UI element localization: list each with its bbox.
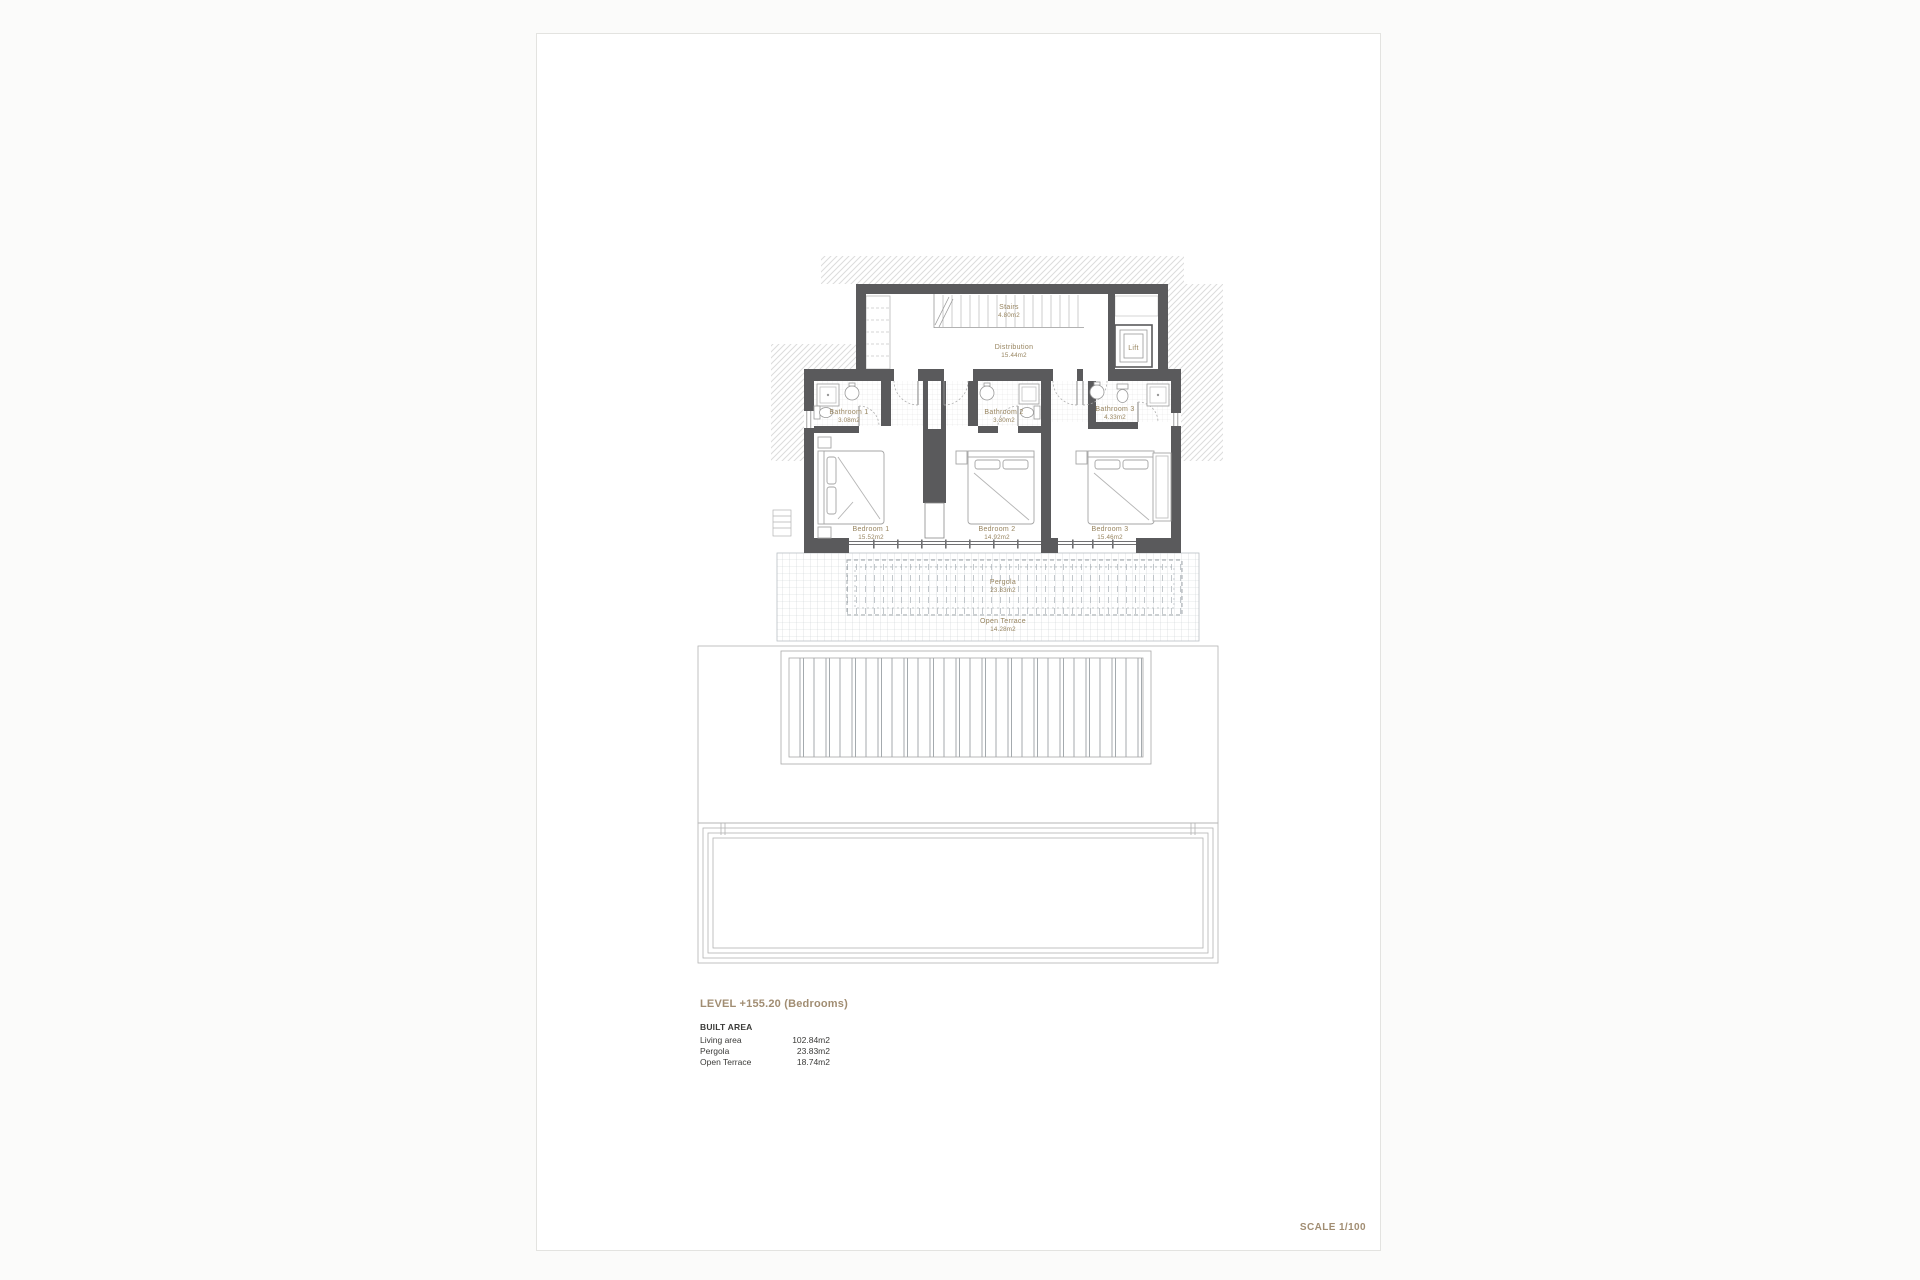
area-value: 23.83m2 — [797, 1046, 830, 1057]
bedroom2-label: Bedroom 2 — [979, 526, 1016, 533]
floor-plan-svg: Stairs 4.80m2 Distribution 15.44m2 Lift … — [537, 34, 1382, 1252]
level-title: LEVEL +155.20 (Bedrooms) — [700, 998, 840, 1010]
duct-outline — [925, 503, 944, 538]
area-label: Pergola — [700, 1046, 797, 1057]
bedroom1-label: Bedroom 1 — [853, 526, 890, 533]
bathroom1-label: Bathroom 1 — [829, 409, 868, 416]
bedroom3-label: Bedroom 3 — [1092, 526, 1129, 533]
slatted-deck — [781, 651, 1151, 764]
stairs-area: 4.80m2 — [998, 312, 1020, 319]
area-value: 102.84m2 — [792, 1035, 830, 1046]
lift-label: Lift — [1128, 345, 1139, 352]
exterior-steps — [773, 510, 791, 536]
bathroom3-area: 4.33m2 — [1104, 414, 1126, 421]
area-row-pergola: Pergola 23.83m2 — [700, 1046, 830, 1057]
bedroom-furniture — [818, 437, 1171, 538]
bathroom2-area: 3.30m2 — [993, 417, 1015, 424]
built-area-table: Living area 102.84m2 Pergola 23.83m2 Ope… — [700, 1035, 840, 1068]
open-terrace-label: Open Terrace — [980, 618, 1026, 625]
wardrobe — [1153, 453, 1171, 521]
bathroom1-area: 3.08m2 — [838, 417, 860, 424]
pergola-area: 23.83m2 — [990, 587, 1016, 594]
distribution-label: Distribution — [995, 344, 1034, 351]
area-row-living: Living area 102.84m2 — [700, 1035, 830, 1046]
closet — [866, 296, 890, 369]
drawing-canvas: Stairs 4.80m2 Distribution 15.44m2 Lift … — [0, 0, 1920, 1280]
stairs — [934, 294, 1084, 328]
bedroom2-area: 14.92m2 — [984, 534, 1010, 541]
distribution-area: 15.44m2 — [1001, 352, 1027, 359]
bathroom2-label: Bathroom 2 — [984, 409, 1023, 416]
title-block: LEVEL +155.20 (Bedrooms) BUILT AREA Livi… — [700, 998, 840, 1068]
stairs-label: Stairs — [999, 304, 1019, 311]
area-label: Living area — [700, 1035, 792, 1046]
built-area-heading: BUILT AREA — [700, 1022, 840, 1032]
lift-shaft — [1115, 296, 1158, 367]
bathroom3-label: Bathroom 3 — [1095, 406, 1134, 413]
open-terrace-area: 14.28m2 — [990, 626, 1016, 633]
bed-2 — [956, 451, 1034, 524]
area-label: Open Terrace — [700, 1057, 797, 1068]
bedroom3-area: 15.46m2 — [1097, 534, 1123, 541]
area-value: 18.74m2 — [797, 1057, 830, 1068]
scale-label: SCALE 1/100 — [1300, 1222, 1366, 1233]
area-row-open-terrace: Open Terrace 18.74m2 — [700, 1057, 830, 1068]
pergola-label: Pergola — [990, 579, 1016, 586]
drawing-sheet: Stairs 4.80m2 Distribution 15.44m2 Lift … — [536, 33, 1381, 1251]
bed-1 — [818, 437, 884, 538]
bed-3 — [1076, 451, 1154, 524]
bedroom1-area: 15.52m2 — [858, 534, 884, 541]
